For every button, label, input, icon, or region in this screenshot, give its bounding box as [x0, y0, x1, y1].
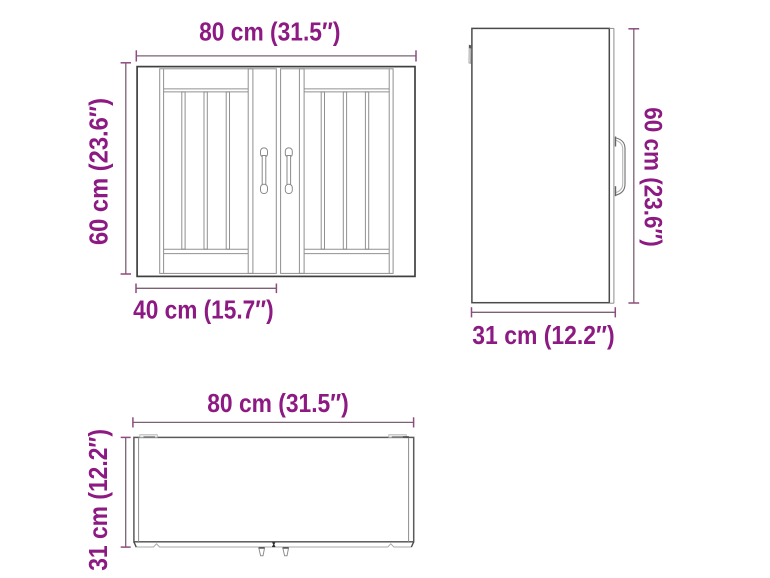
- svg-text:80 cm (31.5″): 80 cm (31.5″): [207, 390, 349, 418]
- svg-text:60 cm (23.6″): 60 cm (23.6″): [639, 107, 666, 247]
- svg-text:80 cm (31.5″): 80 cm (31.5″): [199, 18, 340, 46]
- svg-text:31 cm (12.2″): 31 cm (12.2″): [85, 429, 113, 571]
- svg-text:40 cm (15.7″): 40 cm (15.7″): [133, 297, 274, 325]
- svg-text:60 cm (23.6″): 60 cm (23.6″): [86, 98, 114, 245]
- svg-text:31 cm (12.2″): 31 cm (12.2″): [472, 322, 614, 350]
